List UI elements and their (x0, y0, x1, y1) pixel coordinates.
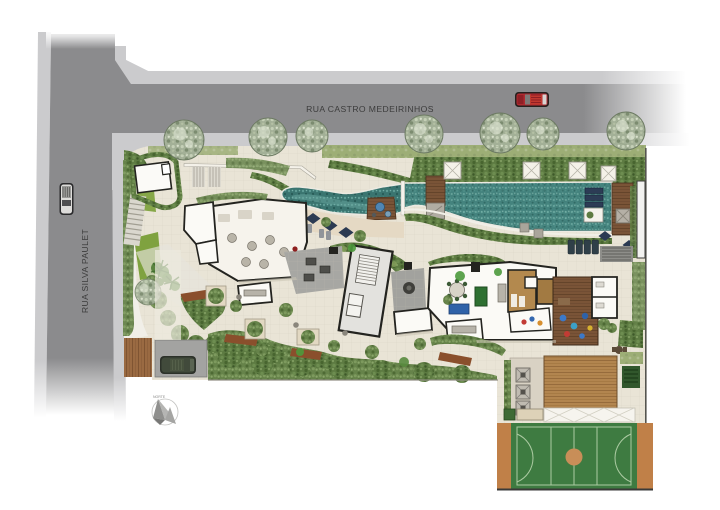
svg-text:NORTE: NORTE (153, 395, 166, 399)
svg-text:RUA CASTRO MEDEIRINHOS: RUA CASTRO MEDEIRINHOS (306, 104, 434, 114)
svg-text:RUA SILVA PAULET: RUA SILVA PAULET (80, 229, 90, 314)
